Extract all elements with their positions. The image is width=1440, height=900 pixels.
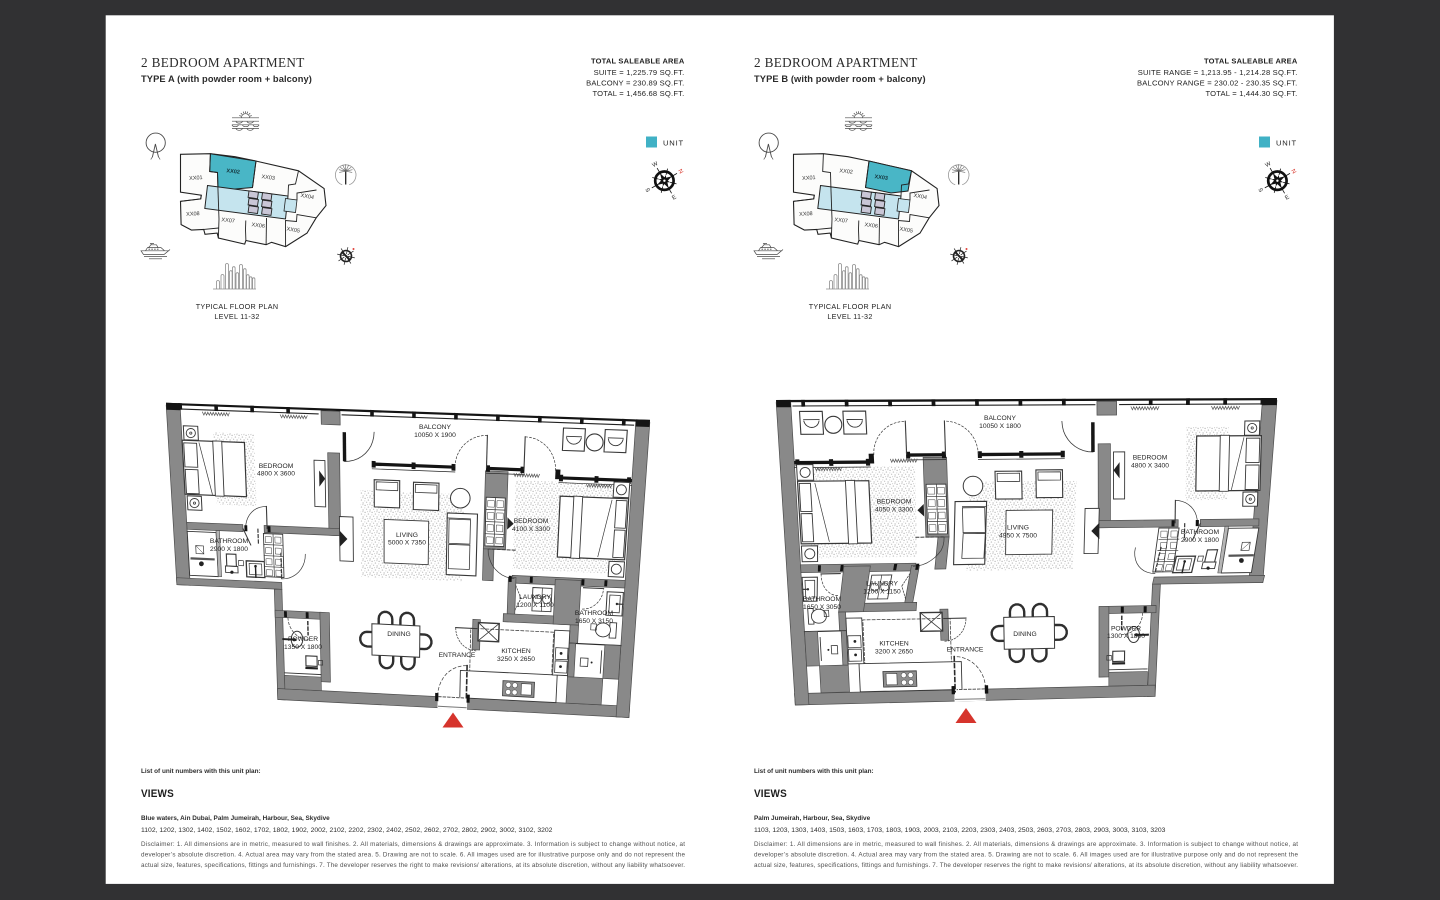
svg-text:1650 X 3150: 1650 X 3150 xyxy=(575,618,613,625)
svg-text:ENTRANCE: ENTRANCE xyxy=(947,647,984,654)
svg-text:4100 X 3300: 4100 X 3300 xyxy=(512,526,550,533)
svg-text:VIEWS: VIEWS xyxy=(141,789,174,800)
svg-text:2900 X 1800: 2900 X 1800 xyxy=(210,546,248,553)
svg-text:BATHROOM: BATHROOM xyxy=(575,610,614,617)
svg-text:2 BEDROOM APARTMENT: 2 BEDROOM APARTMENT xyxy=(141,55,305,70)
svg-text:1650 X 3050: 1650 X 3050 xyxy=(803,604,841,611)
svg-text:LAUNDRY: LAUNDRY xyxy=(519,594,551,601)
svg-text:TOTAL = 1,456.68 SQ.FT.: TOTAL = 1,456.68 SQ.FT. xyxy=(592,89,684,98)
svg-text:TOTAL SALEABLE AREA: TOTAL SALEABLE AREA xyxy=(1204,57,1298,66)
svg-text:LEVEL 11-32: LEVEL 11-32 xyxy=(827,312,872,321)
svg-text:TYPE B (with powder room + bal: TYPE B (with powder room + balcony) xyxy=(754,74,926,84)
svg-text:4050 X 3300: 4050 X 3300 xyxy=(875,507,913,514)
svg-text:KITCHEN: KITCHEN xyxy=(879,641,909,648)
svg-text:Disclaimer: 1. All dimensions: Disclaimer: 1. All dimensions are in met… xyxy=(141,841,685,848)
svg-text:Blue waters, Ain Dubai, Palm J: Blue waters, Ain Dubai, Palm Jumeirah, H… xyxy=(141,815,330,822)
svg-text:UNIT: UNIT xyxy=(663,139,684,148)
svg-text:BEDROOM: BEDROOM xyxy=(1133,455,1168,462)
svg-text:TOTAL = 1,444.30 SQ.FT.: TOTAL = 1,444.30 SQ.FT. xyxy=(1205,89,1297,98)
svg-text:LIVING: LIVING xyxy=(1007,525,1029,532)
svg-text:BATHROOM: BATHROOM xyxy=(803,596,842,603)
svg-text:KITCHEN: KITCHEN xyxy=(501,648,531,655)
svg-text:ENTRANCE: ENTRANCE xyxy=(439,652,476,659)
svg-text:BALCONY: BALCONY xyxy=(984,415,1017,422)
svg-text:BATHROOM: BATHROOM xyxy=(210,538,249,545)
svg-text:1200 X 1150: 1200 X 1150 xyxy=(863,589,901,596)
svg-text:LIVING: LIVING xyxy=(396,532,418,539)
svg-text:DINING: DINING xyxy=(387,631,410,638)
svg-text:VIEWS: VIEWS xyxy=(754,789,787,800)
svg-text:5000 X 7350: 5000 X 7350 xyxy=(388,540,426,547)
svg-text:List of unit numbers with this: List of unit numbers with this unit plan… xyxy=(141,768,261,775)
svg-text:2900 X 1800: 2900 X 1800 xyxy=(1181,537,1219,544)
svg-text:BALCONY RANGE = 230.02 - 230.3: BALCONY RANGE = 230.02 - 230.35 SQ.FT. xyxy=(1137,79,1297,88)
svg-text:10050 X 1900: 10050 X 1900 xyxy=(414,432,456,439)
svg-text:XX08: XX08 xyxy=(186,211,200,218)
svg-text:POWDER: POWDER xyxy=(288,636,318,643)
svg-text:UNIT: UNIT xyxy=(1276,139,1297,148)
svg-text:1300 X 1800: 1300 X 1800 xyxy=(1107,633,1145,640)
svg-text:SUITE RANGE = 1,213.95 - 1,214: SUITE RANGE = 1,213.95 - 1,214.28 SQ.FT. xyxy=(1138,68,1298,77)
svg-text:actual size, features, specifi: actual size, features, specifications, f… xyxy=(141,862,685,869)
svg-text:4950 X 7500: 4950 X 7500 xyxy=(999,533,1037,540)
svg-text:BATHROOM: BATHROOM xyxy=(1181,529,1220,536)
svg-text:Palm Jumeirah, Harbour, Sea, S: Palm Jumeirah, Harbour, Sea, Skydive xyxy=(754,815,871,822)
svg-text:Disclaimer: 1. All dimensions: Disclaimer: 1. All dimensions are in met… xyxy=(754,841,1298,848)
svg-text:XX01: XX01 xyxy=(802,175,816,182)
svg-text:BEDROOM: BEDROOM xyxy=(514,518,549,525)
svg-text:BEDROOM: BEDROOM xyxy=(259,463,294,470)
svg-text:1103, 1203, 1303, 1403, 1503,: 1103, 1203, 1303, 1403, 1503, 1603, 1703… xyxy=(754,827,1166,834)
svg-text:BALCONY: BALCONY xyxy=(419,424,452,431)
svg-text:TYPICAL FLOOR PLAN: TYPICAL FLOOR PLAN xyxy=(196,302,279,311)
svg-text:DINING: DINING xyxy=(1013,631,1036,638)
svg-text:SUITE = 1,225.79 SQ.FT.: SUITE = 1,225.79 SQ.FT. xyxy=(594,68,685,77)
svg-text:XX08: XX08 xyxy=(799,211,813,218)
svg-text:List of unit numbers with this: List of unit numbers with this unit plan… xyxy=(754,768,874,775)
svg-text:3250 X 2650: 3250 X 2650 xyxy=(497,656,535,663)
svg-text:developer’s absolute discretio: developer’s absolute discretion. 4. Actu… xyxy=(754,852,1298,859)
svg-text:LEVEL 11-32: LEVEL 11-32 xyxy=(214,312,259,321)
svg-text:4800 X 3400: 4800 X 3400 xyxy=(1131,463,1169,470)
svg-text:1200 X 1100: 1200 X 1100 xyxy=(516,602,554,609)
svg-text:XX01: XX01 xyxy=(189,175,203,182)
svg-text:developer’s absolute discretio: developer’s absolute discretion. 4. Actu… xyxy=(141,852,685,859)
svg-text:2 BEDROOM APARTMENT: 2 BEDROOM APARTMENT xyxy=(754,55,918,70)
svg-text:1102, 1202, 1302, 1402, 1502,: 1102, 1202, 1302, 1402, 1502, 1602, 1702… xyxy=(141,827,553,834)
svg-text:1350 X 1800: 1350 X 1800 xyxy=(284,644,322,651)
svg-text:3200 X 2650: 3200 X 2650 xyxy=(875,649,913,656)
svg-text:TYPICAL FLOOR PLAN: TYPICAL FLOOR PLAN xyxy=(809,302,892,311)
svg-text:LAUNDRY: LAUNDRY xyxy=(866,581,898,588)
svg-text:actual size, features, specifi: actual size, features, specifications, f… xyxy=(754,862,1298,869)
svg-text:BALCONY = 230.89 SQ.FT.: BALCONY = 230.89 SQ.FT. xyxy=(586,79,684,88)
svg-text:BEDROOM: BEDROOM xyxy=(877,499,912,506)
svg-text:4800 X 3600: 4800 X 3600 xyxy=(257,471,295,478)
svg-text:TOTAL SALEABLE AREA: TOTAL SALEABLE AREA xyxy=(591,57,685,66)
svg-text:10050 X 1800: 10050 X 1800 xyxy=(979,423,1021,430)
svg-text:TYPE A (with powder room + bal: TYPE A (with powder room + balcony) xyxy=(141,74,312,84)
svg-text:POWDER: POWDER xyxy=(1111,626,1141,633)
